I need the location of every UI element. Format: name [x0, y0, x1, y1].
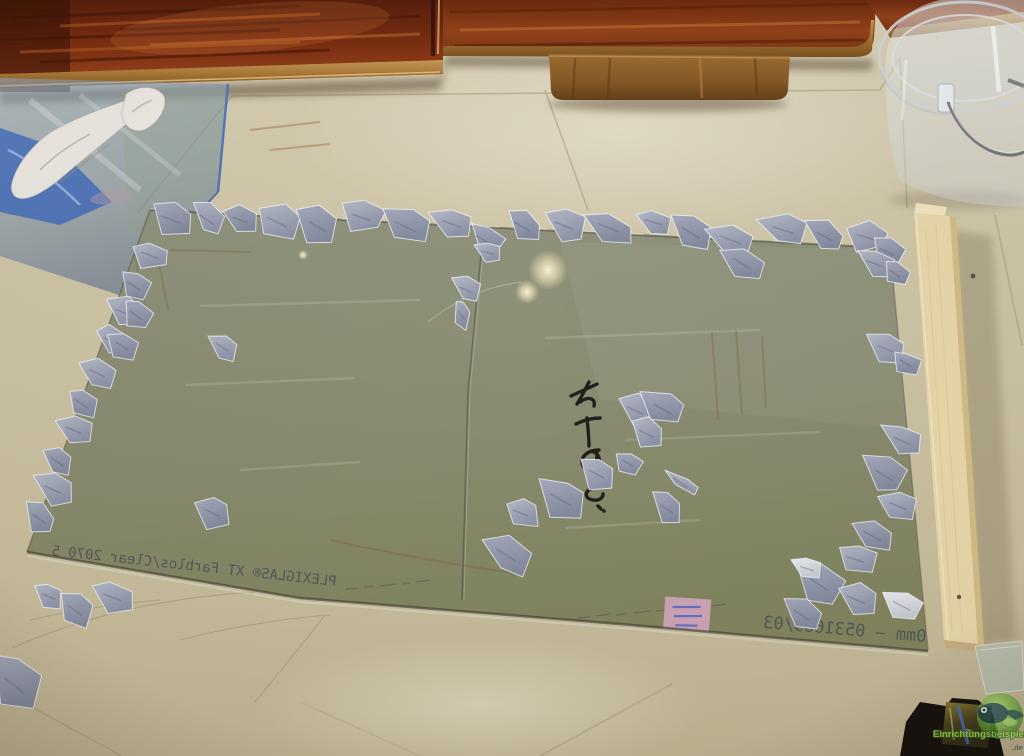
photo-scene: PLEXIGLAS® XT Farblos/Clear 2070 5 0mm —…	[0, 0, 1024, 756]
watermark-text: Einrichtungsbeispiele	[933, 729, 1024, 740]
watermark-tld: .de	[1012, 743, 1023, 752]
fish-pupil	[983, 709, 986, 712]
vignette	[0, 0, 1024, 756]
